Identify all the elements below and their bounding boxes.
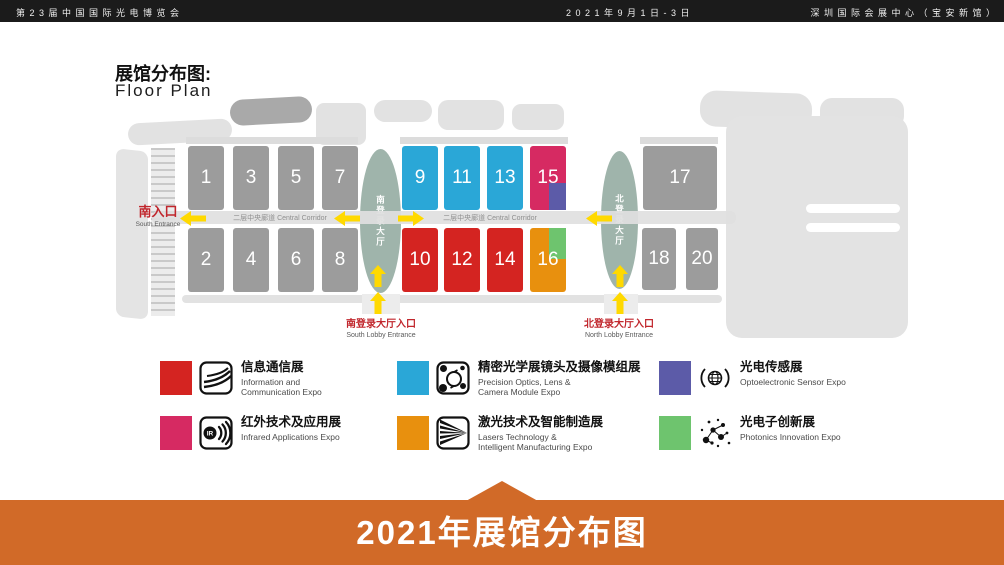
legend-swatch <box>397 361 429 395</box>
hall-3: 3 <box>233 146 269 210</box>
legend-title: 光电传感展 <box>740 361 846 375</box>
legend-subtitle: Photonics Innovation Expo <box>740 432 841 442</box>
legend-swatch <box>659 416 691 450</box>
hall-number: 16 <box>537 249 558 271</box>
south-lobby-zh: 南登录大厅入口 <box>335 315 427 330</box>
legend-title: 精密光学展镜头及摄像模组展 <box>478 361 641 375</box>
hall-number: 7 <box>335 167 346 189</box>
legend-title: 光电子创新展 <box>740 416 841 430</box>
hall-number: 4 <box>246 249 257 271</box>
legend-subtitle: Lasers Technology & Intelligent Manufact… <box>478 432 603 452</box>
arrow-right-icon <box>398 211 424 226</box>
north-lobby-en: North Lobby Entrance <box>573 332 665 339</box>
hall-number: 20 <box>691 248 712 270</box>
optoelectronic-sensor-icon <box>698 361 732 395</box>
south-lobby-en: South Lobby Entrance <box>335 332 427 339</box>
hall-number: 14 <box>494 249 515 271</box>
arrow-up-icon <box>612 265 628 287</box>
building-outline-shape <box>374 100 432 122</box>
hall-9: 9 <box>402 146 438 210</box>
hall-pad-band <box>640 137 718 144</box>
corridor-label-west: 二层中央廊道 Central Corridor <box>205 213 355 223</box>
hall-18: 18 <box>642 228 676 290</box>
page-subtitle: Floor Plan <box>115 81 212 101</box>
hall-number: 9 <box>415 167 426 189</box>
laser-beam-icon <box>436 416 470 450</box>
hall-17: 17 <box>643 146 717 210</box>
hall-number: 5 <box>291 167 302 189</box>
hall-number: 18 <box>648 248 669 270</box>
camera-lens-icon <box>436 361 470 395</box>
arrow-left-icon <box>334 211 360 226</box>
expo-venue: 深 圳 国 际 会 展 中 心 （ 宝 安 新 馆 ） <box>810 6 996 19</box>
south-entrance-stairs <box>151 148 175 316</box>
photonics-network-icon <box>698 416 732 450</box>
legend-item-precision-optics: 精密光学展镜头及摄像模组展 Precision Optics, Lens & C… <box>397 361 641 397</box>
hall-pad-band <box>186 137 358 144</box>
legend-title: 信息通信展 <box>241 361 322 375</box>
legend-title: 激光技术及智能制造展 <box>478 416 603 430</box>
hall-number: 17 <box>669 167 690 189</box>
east-building-slot <box>806 223 900 232</box>
north-lobby-entrance-label: 北登录大厅入口 North Lobby Entrance <box>573 315 665 339</box>
hall-number: 1 <box>201 167 212 189</box>
hall-15: 15 <box>530 146 566 210</box>
arrow-up-icon <box>370 265 386 287</box>
hall-16: 16 <box>530 228 566 292</box>
hall-number: 3 <box>246 167 257 189</box>
hall-4: 4 <box>233 228 269 292</box>
hall-12: 12 <box>444 228 480 292</box>
legend-subtitle: Information and Communication Expo <box>241 377 322 397</box>
corridor-label-east: 二层中央廊道 Central Corridor <box>415 213 565 223</box>
legend-swatch <box>659 361 691 395</box>
expo-title: 第 2 3 届 中 国 国 际 光 电 博 览 会 <box>16 6 180 19</box>
footer-title: 2021年展馆分布图 <box>0 500 1004 565</box>
hall-2: 2 <box>188 228 224 292</box>
legend-item-photonics-innovation: 光电子创新展 Photonics Innovation Expo <box>659 416 841 450</box>
south-entrance-structure <box>116 148 148 319</box>
building-outline-shape <box>512 104 564 130</box>
expo-dates: 2 0 2 1 年 9 月 1 日 - 3 日 <box>566 6 691 19</box>
south-entrance-label: 南入口 South Entrance <box>118 201 198 228</box>
legend-swatch <box>397 416 429 450</box>
hall-number: 2 <box>201 249 212 271</box>
hall-number: 6 <box>291 249 302 271</box>
cioe-floor-plan-page: 第 2 3 届 中 国 国 际 光 电 博 览 会 2 0 2 1 年 9 月 … <box>0 0 1004 565</box>
hall-6: 6 <box>278 228 314 292</box>
hall-7: 7 <box>322 146 358 210</box>
south-lobby-entrance-label: 南登录大厅入口 South Lobby Entrance <box>335 315 427 339</box>
hall-pad-band <box>400 137 568 144</box>
hall-number: 12 <box>451 249 472 271</box>
south-entrance-en: South Entrance <box>118 221 198 228</box>
east-building-slot <box>806 204 900 213</box>
arrow-up-icon <box>370 292 386 314</box>
hall-number: 10 <box>409 249 430 271</box>
arrow-up-icon <box>612 292 628 314</box>
hall-13: 13 <box>487 146 523 210</box>
legend-item-optoelectronic-sensor: 光电传感展 Optoelectronic Sensor Expo <box>659 361 846 395</box>
legend-subtitle: Optoelectronic Sensor Expo <box>740 377 846 387</box>
legend-swatch <box>160 361 192 395</box>
legend-subtitle: Precision Optics, Lens & Camera Module E… <box>478 377 641 397</box>
hall-20: 20 <box>686 228 718 290</box>
hall-number: 8 <box>335 249 346 271</box>
hall-8: 8 <box>322 228 358 292</box>
legend-item-information-communication: 信息通信展 Information and Communication Expo <box>160 361 322 397</box>
hall-10: 10 <box>402 228 438 292</box>
building-outline-shape <box>438 100 504 130</box>
infrared-icon: IR <box>199 416 233 450</box>
hall-number: 13 <box>494 167 515 189</box>
building-roof-shape <box>229 96 312 126</box>
arrow-left-icon <box>586 211 612 226</box>
south-entrance-zh: 南入口 <box>118 201 198 220</box>
legend-swatch <box>160 416 192 450</box>
north-lobby-zh: 北登录大厅入口 <box>573 315 665 330</box>
legend-item-infrared: IR 红外技术及应用展 Infrared Applications Expo <box>160 416 341 450</box>
hall-5: 5 <box>278 146 314 210</box>
hall-14: 14 <box>487 228 523 292</box>
building-bottom-band <box>182 295 722 303</box>
footer-pointer-triangle <box>466 481 538 501</box>
fiber-optics-icon <box>199 361 233 395</box>
hall-number: 11 <box>452 167 472 189</box>
svg-text:IR: IR <box>207 431 214 438</box>
legend-subtitle: Infrared Applications Expo <box>241 432 341 442</box>
hall-11: 11 <box>444 146 480 210</box>
legend-title: 红外技术及应用展 <box>241 416 341 430</box>
top-header-bar: 第 2 3 届 中 国 国 际 光 电 博 览 会 2 0 2 1 年 9 月 … <box>0 0 1004 22</box>
hall-number: 15 <box>537 167 558 189</box>
legend-item-laser-technology: 激光技术及智能制造展 Lasers Technology & Intellige… <box>397 416 603 452</box>
